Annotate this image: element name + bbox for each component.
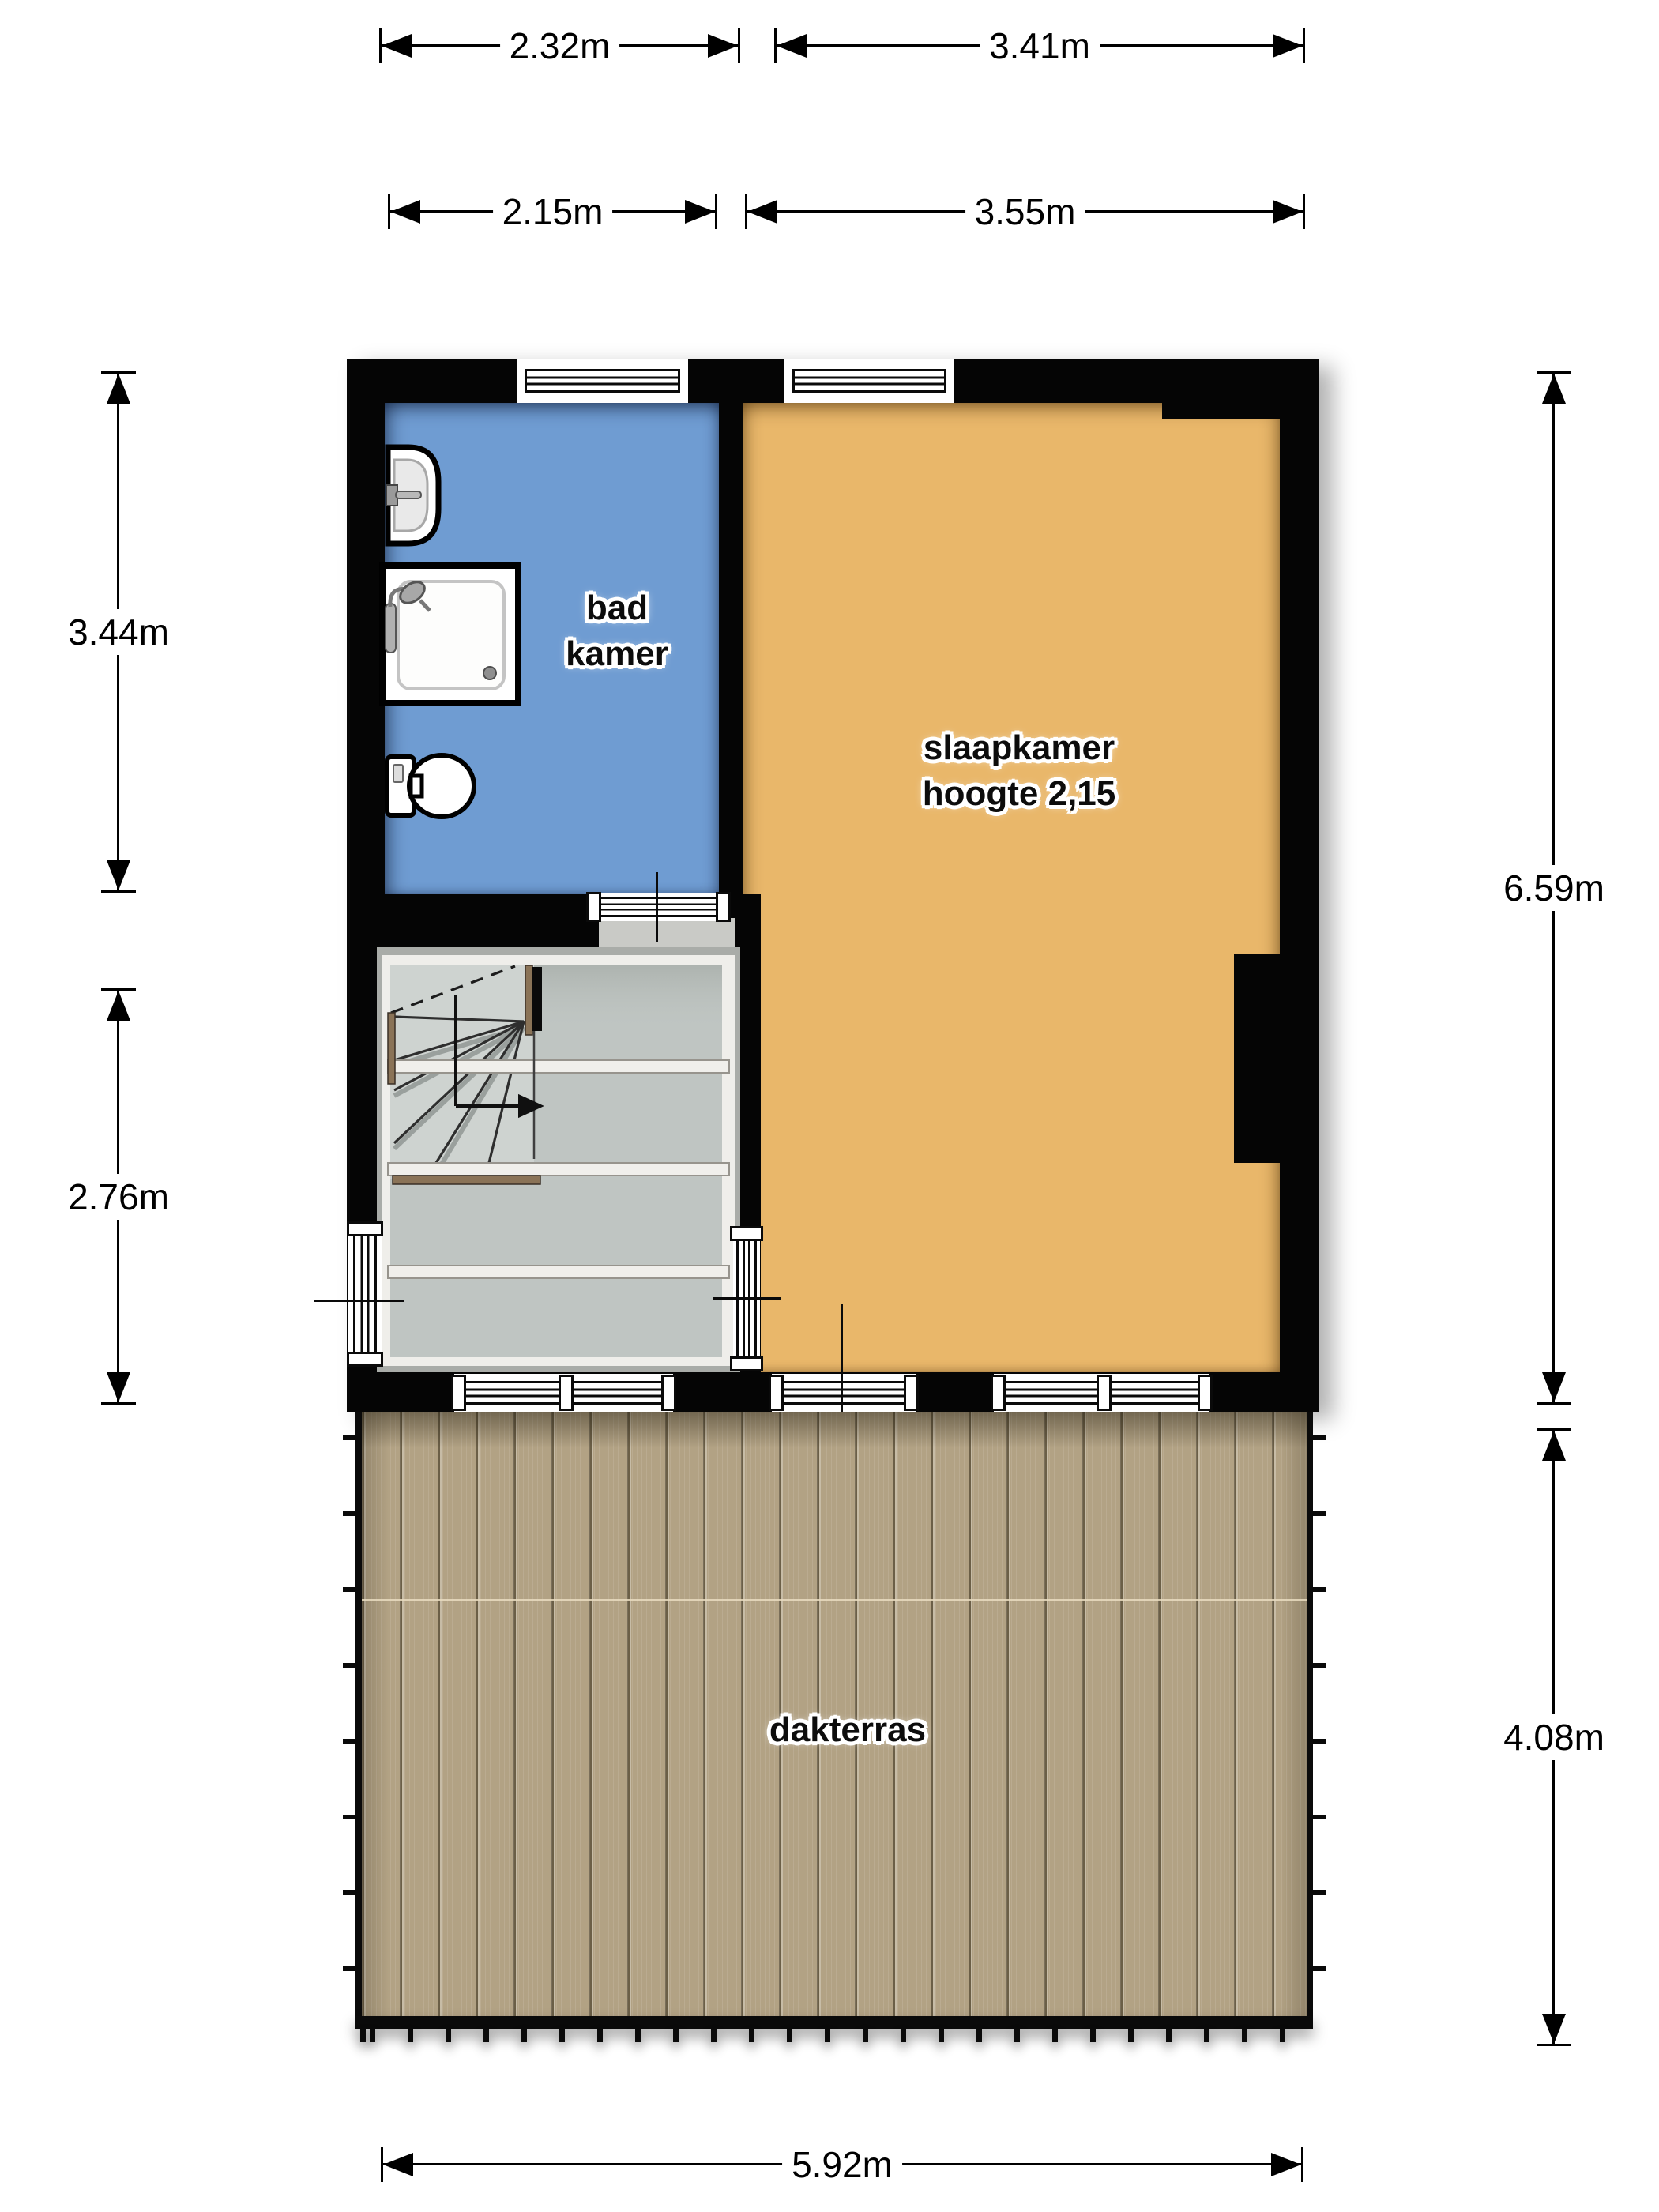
dimension-top-outer-right: 3.41m: [774, 28, 1305, 63]
sink-icon: [385, 444, 442, 547]
dimension-left-bathroom: 3.44m: [101, 371, 136, 893]
window-bedroom-south-1: [772, 1374, 916, 1412]
axis-mark: [841, 1303, 843, 1424]
dimension-value: 3.44m: [58, 609, 179, 655]
wall-notch: [1162, 359, 1280, 419]
terrace-edge-ticks: [1313, 1435, 1326, 2016]
dimension-value: 2.76m: [58, 1174, 179, 1220]
dimension-top-inner-left: 2.15m: [388, 194, 717, 229]
window-bedroom-south-2: [994, 1374, 1209, 1412]
axis-mark: [713, 1297, 781, 1300]
dimension-value: 6.59m: [1494, 865, 1614, 911]
terrace-edge-ticks: [355, 2029, 1313, 2042]
dimension-top-inner-right: 3.55m: [745, 194, 1305, 229]
toilet-icon: [385, 752, 478, 820]
room-label-bedroom: slaapkamer hoogte 2,15: [923, 725, 1116, 817]
axis-mark: [656, 872, 658, 942]
window-bedroom-top: [784, 359, 954, 403]
dimension-value: 3.41m: [980, 23, 1100, 69]
stair-landing: [599, 918, 735, 950]
dimension-value: 4.08m: [1494, 1714, 1614, 1760]
terrace-edge-ticks: [343, 1435, 355, 2016]
dimension-value: 2.15m: [493, 189, 613, 235]
dimension-value: 5.92m: [782, 2142, 902, 2188]
staircase-icon: [377, 947, 740, 1372]
dimension-right-terrace: 4.08m: [1537, 1428, 1571, 2046]
axis-mark: [314, 1300, 404, 1302]
dimension-left-stairwell: 2.76m: [101, 988, 136, 1405]
room-label-roof-terrace: dakterras: [769, 1707, 926, 1753]
shower-icon: [379, 562, 521, 706]
dimension-top-outer-left: 2.32m: [379, 28, 740, 63]
window-bathroom-top: [517, 359, 688, 403]
window-bathroom-stairwell: [589, 893, 728, 921]
dimension-value: 3.55m: [965, 189, 1085, 235]
dimension-right-house: 6.59m: [1537, 371, 1571, 1405]
room-label-bathroom: bad kamer: [566, 585, 668, 677]
dimension-bottom-width: 5.92m: [381, 2147, 1303, 2182]
dimension-value: 2.32m: [500, 23, 620, 69]
chimney-pillar: [1234, 954, 1280, 1163]
window-stairwell-west: [348, 1224, 382, 1364]
floorplan-canvas: bad kamer slaapkamer hoogte 2,15 dakterr…: [0, 0, 1659, 2212]
room-bedroom: [743, 403, 1280, 1372]
window-stairwell-south: [454, 1374, 673, 1412]
